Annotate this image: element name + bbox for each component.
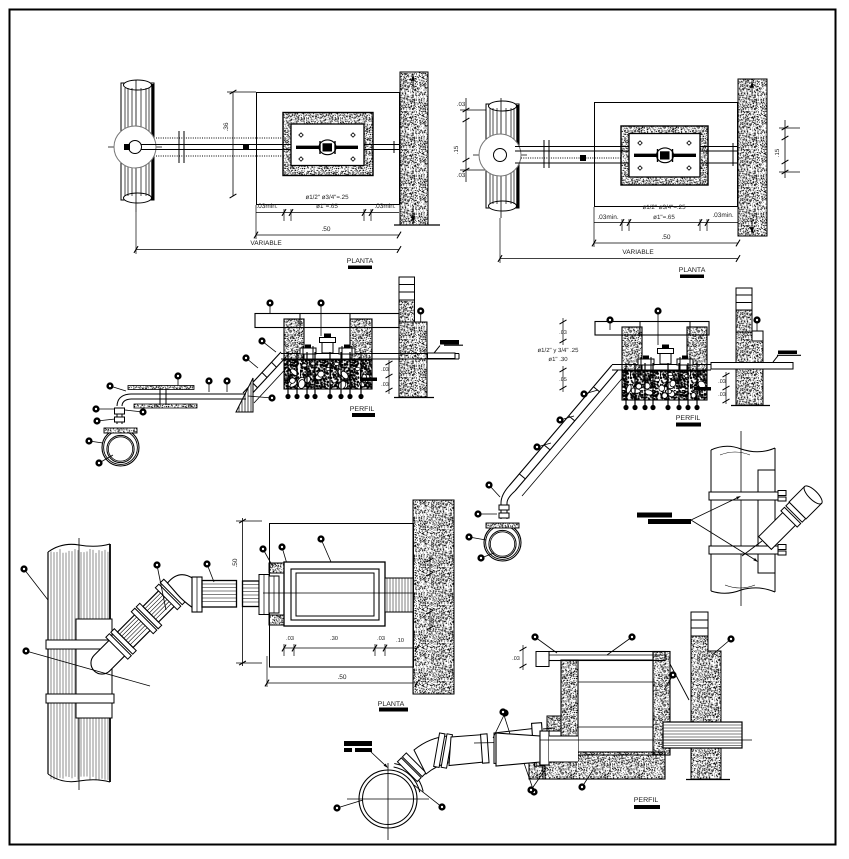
svg-text:.03min.: .03min. (256, 203, 278, 210)
svg-text:.03: .03 (718, 379, 726, 385)
svg-text:.03: .03 (559, 330, 567, 336)
svg-text:.03: .03 (381, 367, 389, 373)
svg-text:.03: .03 (457, 101, 466, 108)
svg-text:ø1"=.65: ø1"=.65 (653, 214, 675, 221)
svg-text:PLANTA: PLANTA (378, 701, 405, 708)
svg-text:.50: .50 (321, 226, 330, 233)
svg-text:.30: .30 (330, 635, 338, 642)
svg-text:.03: .03 (512, 656, 520, 662)
svg-text:.03: .03 (286, 635, 294, 642)
svg-text:.03min.: .03min. (597, 214, 619, 221)
svg-text:PERFIL: PERFIL (634, 797, 659, 804)
svg-text:PERFIL: PERFIL (676, 415, 701, 422)
svg-text:PERFIL: PERFIL (350, 406, 375, 413)
svg-text:.50: .50 (232, 558, 239, 567)
svg-text:.15: .15 (774, 148, 781, 157)
svg-text:.05: .05 (559, 377, 567, 383)
svg-text:.36: .36 (223, 122, 230, 131)
svg-text:.03min.: .03min. (374, 203, 396, 210)
svg-text:ø1"=.65: ø1"=.65 (316, 203, 338, 210)
svg-text:ø1/2" y 3/4" .25: ø1/2" y 3/4" .25 (538, 347, 580, 354)
svg-text:.03: .03 (718, 392, 726, 398)
svg-text:PLANTA: PLANTA (679, 267, 706, 274)
svg-text:.10: .10 (396, 637, 404, 644)
svg-text:.50: .50 (661, 234, 670, 241)
svg-text:.15: .15 (453, 145, 460, 154)
svg-text:ø1" .30: ø1" .30 (548, 356, 568, 363)
svg-text:.50: .50 (337, 674, 346, 681)
svg-text:ø1/2" ø3/4"=.25: ø1/2" ø3/4"=.25 (305, 194, 349, 201)
svg-text:ø1/2" ø3/4"=.25: ø1/2" ø3/4"=.25 (642, 204, 686, 211)
svg-text:VARIABLE: VARIABLE (622, 249, 654, 256)
svg-text:.03min.: .03min. (712, 212, 734, 219)
svg-text:PLANTA: PLANTA (347, 258, 374, 265)
svg-text:VARIABLE: VARIABLE (250, 240, 282, 247)
svg-text:.03: .03 (457, 172, 466, 179)
svg-text:.03: .03 (377, 635, 385, 642)
svg-text:.03: .03 (381, 382, 389, 388)
